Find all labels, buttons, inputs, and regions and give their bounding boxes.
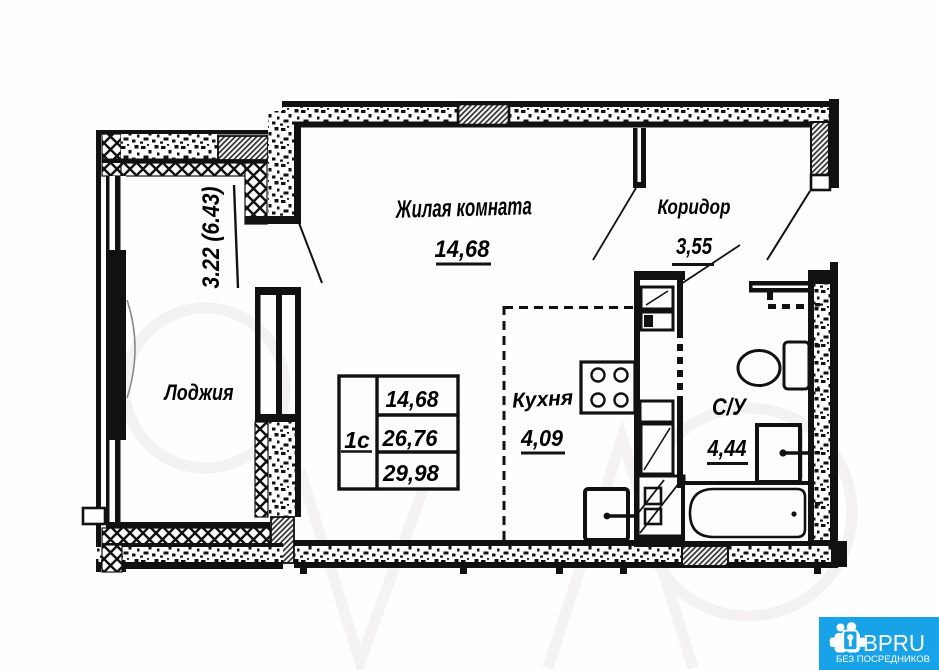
svg-text:26,76: 26,76: [382, 425, 438, 451]
svg-text:3.22 (6.43): 3.22 (6.43): [198, 186, 225, 288]
svg-text:BPRU: BPRU: [863, 630, 925, 656]
svg-text:14,68: 14,68: [435, 236, 491, 263]
svg-text:Коридор: Коридор: [658, 196, 731, 219]
svg-text:3,55: 3,55: [676, 233, 713, 259]
svg-text:1с: 1с: [344, 427, 370, 453]
svg-text:4,09: 4,09: [520, 425, 563, 451]
svg-text:14,68: 14,68: [386, 386, 439, 412]
svg-text:Кухня: Кухня: [512, 386, 574, 412]
svg-text:4,44: 4,44: [707, 435, 747, 461]
svg-text:29,98: 29,98: [382, 460, 439, 486]
svg-text:БЕЗ ПОСРЕДНИКОВ: БЕЗ ПОСРЕДНИКОВ: [836, 654, 930, 664]
svg-text:С/У: С/У: [712, 394, 747, 421]
svg-text:Жилая комната: Жилая комната: [394, 192, 532, 224]
svg-text:Лоджия: Лоджия: [163, 380, 234, 405]
